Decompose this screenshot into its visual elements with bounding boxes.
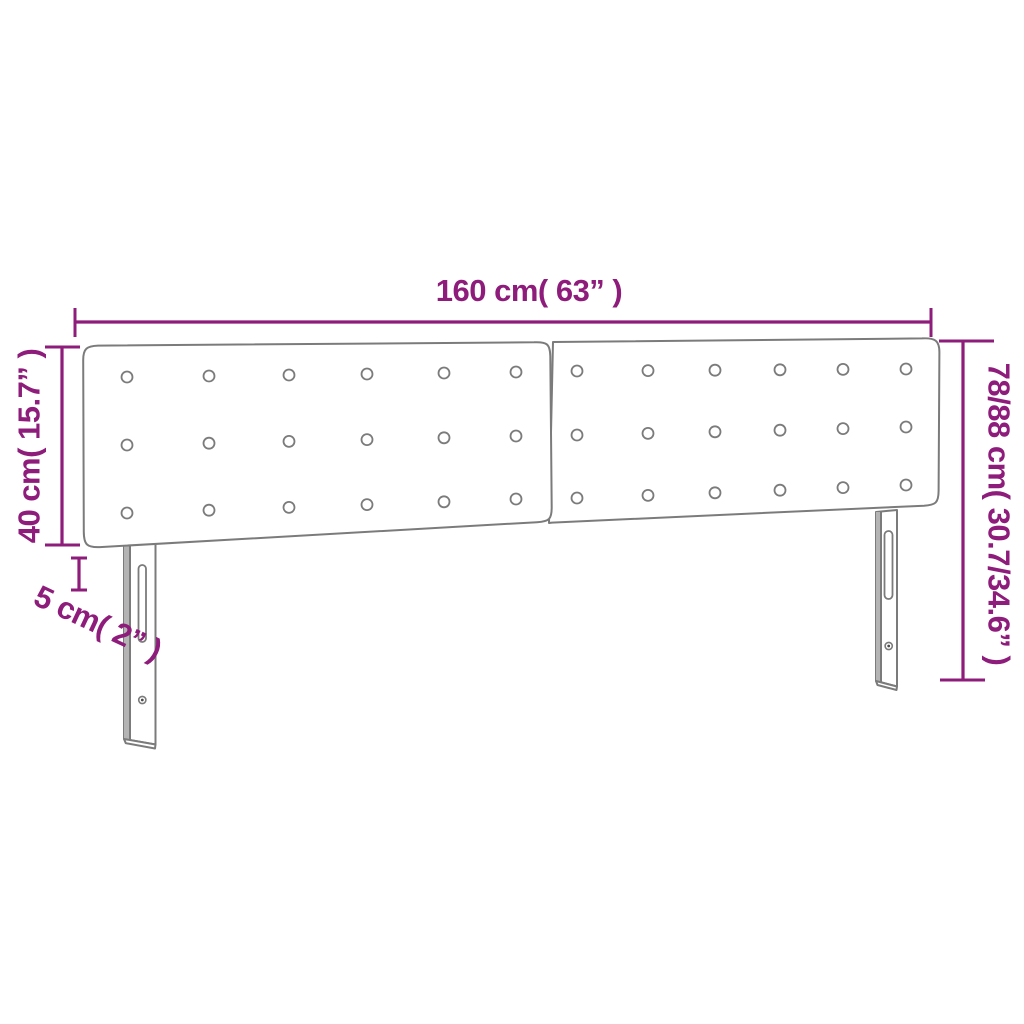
tuft-button <box>511 431 522 442</box>
left-panel <box>83 342 552 547</box>
tuft-button <box>838 364 849 375</box>
tuft-button <box>572 493 583 504</box>
headboard-dimension-diagram: 160 cm( 63” ) 40 cm( 15.7” ) 5 cm( 2” ) … <box>0 0 1024 1024</box>
tuft-button <box>511 494 522 505</box>
tuft-button <box>122 440 133 451</box>
tuft-button <box>643 428 654 439</box>
tuft-button <box>572 430 583 441</box>
tuft-button <box>284 370 295 381</box>
diagram-stage: 160 cm( 63” ) 40 cm( 15.7” ) 5 cm( 2” ) … <box>0 0 1024 1024</box>
right-leg <box>876 510 897 690</box>
tuft-button <box>204 505 215 516</box>
tuft-button <box>710 365 721 376</box>
tuft-button <box>362 434 373 445</box>
total-height-dimension: 78/88 cm( 30.7/34.6” ) <box>939 341 1017 680</box>
tuft-button <box>204 371 215 382</box>
right-panel <box>549 338 939 523</box>
tuft-button <box>122 372 133 383</box>
tuft-button <box>901 364 912 375</box>
tuft-button <box>362 369 373 380</box>
tuft-button <box>710 426 721 437</box>
tuft-button <box>775 485 786 496</box>
tuft-button <box>511 367 522 378</box>
tuft-button <box>710 487 721 498</box>
left-leg-screw-dot <box>141 699 144 702</box>
total-height-label: 78/88 cm( 30.7/34.6” ) <box>982 363 1017 666</box>
right-leg-slot <box>885 531 893 599</box>
tuft-button <box>572 366 583 377</box>
tuft-button <box>775 364 786 375</box>
tuft-button <box>838 482 849 493</box>
tuft-button <box>439 368 450 379</box>
tuft-button <box>362 499 373 510</box>
tuft-button <box>122 508 133 519</box>
tuft-button <box>775 425 786 436</box>
headboard-figure <box>83 338 939 748</box>
tuft-button <box>284 436 295 447</box>
tuft-button <box>643 365 654 376</box>
width-dimension-label: 160 cm( 63” ) <box>436 273 623 308</box>
headboard-height-dimension: 40 cm( 15.7” ) <box>12 347 81 545</box>
width-dimension: 160 cm( 63” ) <box>75 273 931 337</box>
headboard-height-label: 40 cm( 15.7” ) <box>12 349 47 544</box>
tuft-button <box>439 432 450 443</box>
tuft-button <box>901 480 912 491</box>
tuft-button <box>204 438 215 449</box>
tuft-button <box>643 490 654 501</box>
tuft-button <box>439 496 450 507</box>
right-leg-screw-dot <box>887 645 890 648</box>
tuft-button <box>284 502 295 513</box>
tuft-button <box>901 422 912 433</box>
tuft-button <box>838 423 849 434</box>
